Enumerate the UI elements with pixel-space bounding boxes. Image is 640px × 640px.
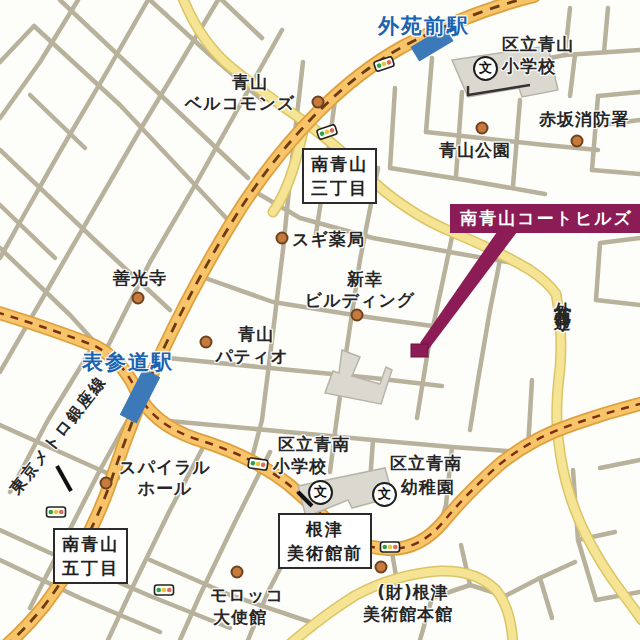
dot-bellcommons — [313, 97, 324, 108]
sanchome-line2: 三丁目 — [311, 176, 368, 200]
dot-aoyama-park — [477, 123, 488, 134]
nezu-museum-label-1: (財)根津 — [377, 581, 449, 604]
dot-sugi-pharmacy — [277, 233, 288, 244]
gochome-line2: 五丁目 — [62, 556, 119, 580]
traffic-light-icon — [47, 507, 66, 517]
seinan-elementary-label-1: 区立青南 — [278, 433, 350, 456]
gaienmae-station-label: 外苑前駅 — [378, 12, 470, 40]
seinan-elementary-label-2: 小学校 — [273, 455, 327, 478]
traffic-light-icon — [248, 458, 268, 471]
aoyama-elementary-label-1: 区立青山 — [502, 33, 574, 56]
aoyama-patio-label-2: パティオ — [215, 345, 289, 368]
seinan-kindergarten-label-1: 区立青南 — [390, 452, 462, 475]
nezu-mae-line2: 美術館前 — [287, 541, 363, 565]
dot-zenkoji — [133, 293, 144, 304]
seinan-kindergarten-label-2: 幼稚園 — [401, 476, 455, 499]
aoyama-patio-label-1: 青山 — [238, 323, 274, 346]
shinko-building-label-1: 新幸 — [347, 268, 383, 291]
gaien-nishi-dori-label: 外苑西通り — [552, 288, 575, 327]
aoyama-park-label: 青山公園 — [439, 139, 511, 162]
traffic-light-icon — [381, 542, 400, 552]
school-icon: 文 — [473, 56, 498, 81]
dot-akasaka-fire — [572, 136, 583, 147]
dot-morocco-embassy — [232, 567, 243, 578]
spiral-hall-label-2: ホール — [138, 477, 193, 500]
school-icon: 文 — [372, 482, 397, 507]
dot-aoyama-patio — [201, 337, 212, 348]
sugi-pharmacy-label: スギ薬局 — [292, 228, 365, 251]
traffic-light-icon — [155, 585, 174, 595]
nezu-mae-line1: 根津 — [287, 517, 363, 541]
sanchome-line1: 南青山 — [311, 152, 368, 176]
dot-spiral-hall — [101, 478, 112, 489]
morocco-embassy-label-2: 大使館 — [213, 606, 267, 629]
ginza-line-tick — [57, 466, 71, 491]
bellcommons-label-2: ベルコモンズ — [185, 92, 295, 115]
school-icon: 文 — [308, 480, 333, 505]
nezu-museum-mae-box: 根津 美術館前 — [278, 513, 372, 569]
akasaka-fire-label: 赤坂消防署 — [539, 108, 629, 131]
area-map: 外苑前駅 表参道駅 東京メトロ銀座線 外苑西通り 南青山コートヒルズ 南青山 三… — [0, 0, 640, 640]
shinko-building-label-2: ビルディング — [305, 289, 415, 312]
zenkoji-label: 善光寺 — [113, 267, 167, 290]
dot-nezu-museum — [376, 562, 387, 573]
aoyama-elementary-label-2: 小学校 — [502, 55, 556, 78]
bellcommons-label-1: 青山 — [232, 71, 268, 94]
spiral-hall-label-1: スパイラル — [119, 456, 211, 479]
gochome-box: 南青山 五丁目 — [53, 528, 128, 584]
sanchome-box: 南青山 三丁目 — [302, 148, 377, 204]
property-marker — [411, 344, 428, 357]
gochome-line1: 南青山 — [62, 532, 119, 556]
nezu-museum-label-2: 美術館本館 — [363, 603, 453, 626]
morocco-embassy-label-1: モロッコ — [210, 584, 284, 607]
property-highlight-label: 南青山コートヒルズ — [450, 204, 640, 233]
